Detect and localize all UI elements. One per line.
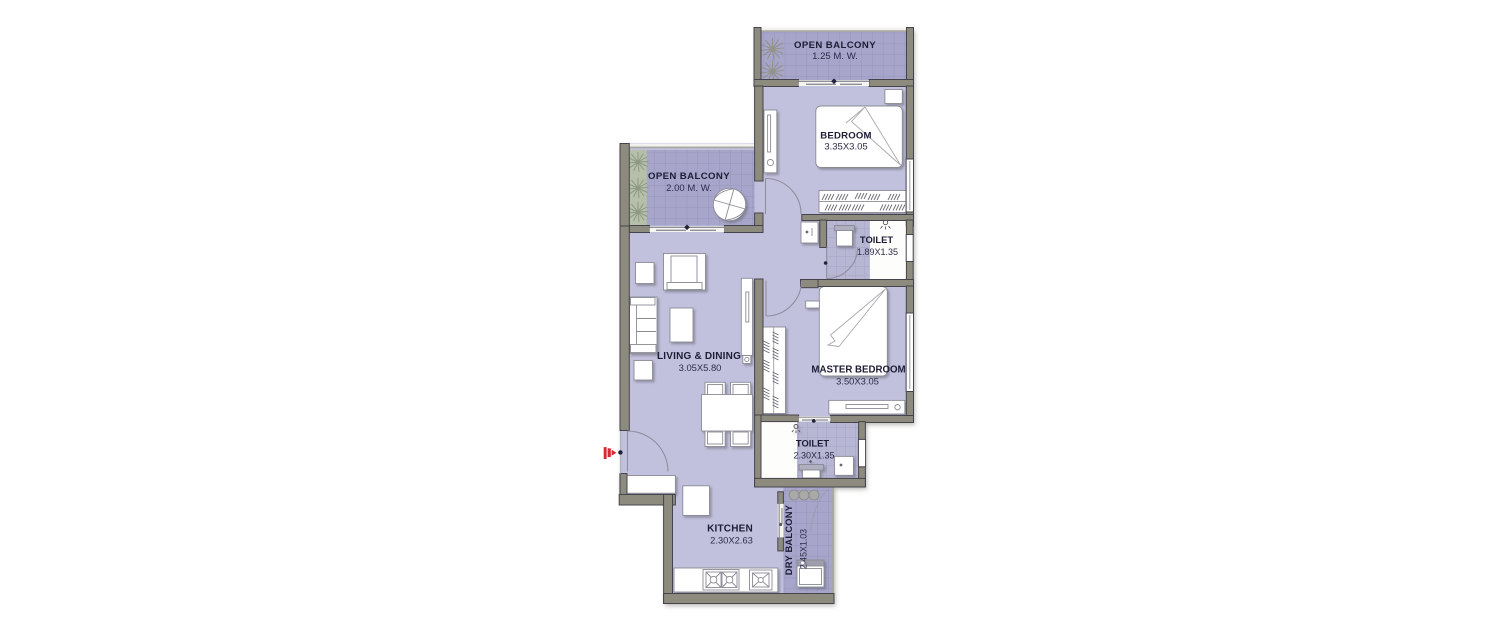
svg-text:2.30X1.35: 2.30X1.35 bbox=[793, 451, 834, 461]
svg-text:TOILET: TOILET bbox=[796, 438, 829, 449]
svg-text:2.30X2.63: 2.30X2.63 bbox=[710, 535, 753, 546]
svg-text:3.35X3.05: 3.35X3.05 bbox=[824, 142, 867, 153]
svg-text:3.05X5.80: 3.05X5.80 bbox=[679, 362, 722, 373]
svg-text:OPEN BALCONY: OPEN BALCONY bbox=[648, 171, 730, 182]
svg-text:1.25 M. W.: 1.25 M. W. bbox=[812, 51, 858, 62]
svg-text:DRY BALCONY: DRY BALCONY bbox=[783, 504, 794, 575]
svg-text:1.89X1.35: 1.89X1.35 bbox=[857, 247, 898, 257]
svg-text:3.50X3.05: 3.50X3.05 bbox=[836, 376, 879, 387]
svg-text:2.00 M. W.: 2.00 M. W. bbox=[666, 183, 712, 194]
svg-text:LIVING & DINING: LIVING & DINING bbox=[657, 351, 741, 362]
svg-text:2.45X1.03: 2.45X1.03 bbox=[799, 529, 809, 569]
svg-text:KITCHEN: KITCHEN bbox=[707, 524, 753, 535]
svg-text:OPEN BALCONY: OPEN BALCONY bbox=[794, 40, 876, 51]
svg-text:BEDROOM: BEDROOM bbox=[820, 131, 872, 142]
svg-text:MASTER BEDROOM: MASTER BEDROOM bbox=[811, 365, 905, 376]
svg-text:TOILET: TOILET bbox=[860, 234, 893, 245]
